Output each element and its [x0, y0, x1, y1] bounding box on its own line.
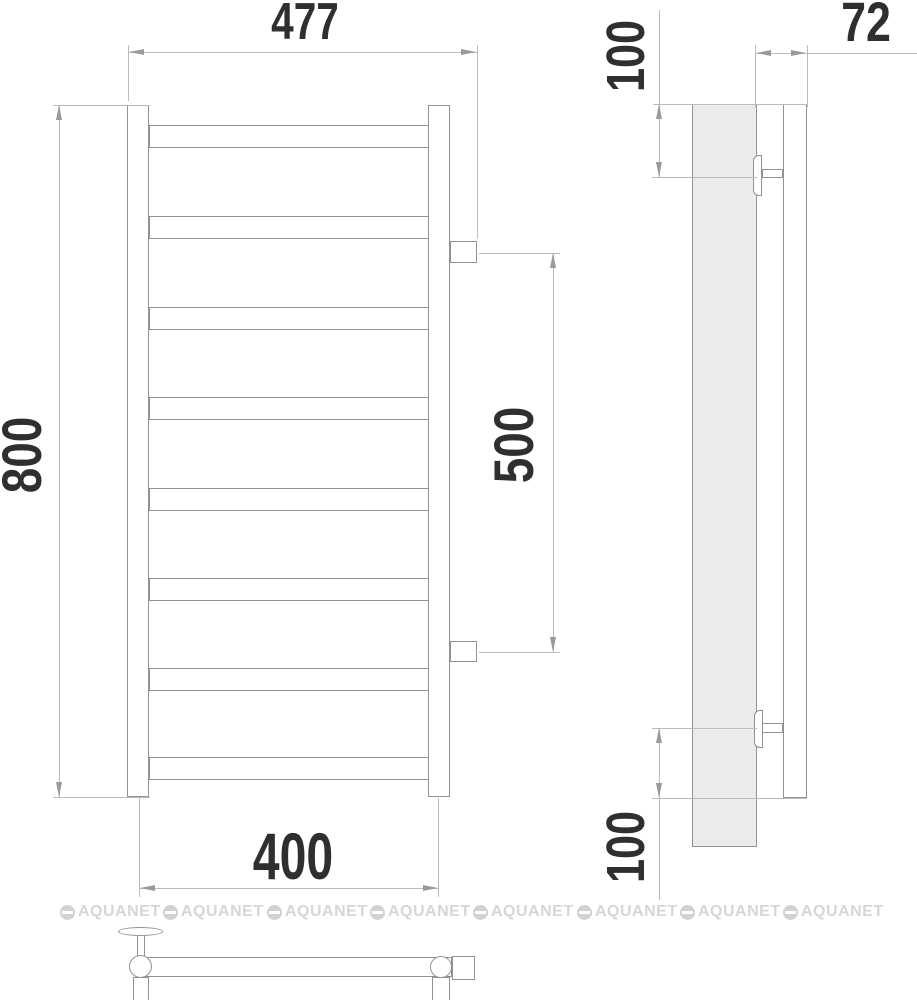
- dim-arrow-up: [550, 253, 556, 268]
- aquanet-logo-circle-icon: [60, 905, 75, 920]
- watermark: AQUANET: [473, 904, 574, 920]
- rung: [149, 216, 429, 239]
- plan-valve-flange: [118, 927, 163, 936]
- top-bracket-flange: [753, 155, 762, 196]
- wall-mount-rail: [783, 104, 807, 798]
- rung: [149, 488, 429, 511]
- dim-arrow-down: [56, 782, 62, 797]
- dim-value-500: 500: [486, 407, 542, 484]
- dim-arrow-up: [56, 105, 62, 120]
- plan-tube-end-cap: [452, 956, 475, 980]
- watermark-label: AQUANET: [801, 904, 884, 920]
- rung: [149, 668, 429, 691]
- rung: [149, 307, 429, 330]
- plan-top-rung-tube: [140, 957, 452, 977]
- aquanet-logo-circle-icon: [680, 905, 695, 920]
- side-panel-profile: [692, 104, 757, 847]
- dim-arrow-down: [550, 637, 556, 652]
- aquanet-logo-circle-icon: [783, 905, 798, 920]
- watermark-label: AQUANET: [595, 904, 678, 920]
- dim-ext-line: [652, 177, 757, 178]
- watermark: AQUANET: [680, 904, 781, 920]
- dim-line: [59, 105, 60, 797]
- rung: [149, 397, 429, 420]
- aquanet-logo-circle-icon: [473, 905, 488, 920]
- dim-value-400: 400: [253, 823, 333, 889]
- lower-connection-fitting: [450, 641, 477, 662]
- watermark: AQUANET: [370, 904, 471, 920]
- dim-value-477: 477: [271, 0, 339, 48]
- dim-value-100-bottom: 100: [599, 811, 653, 883]
- dim-arrow-left: [140, 885, 155, 891]
- plan-right-bracket-pin: [432, 977, 450, 1000]
- aquanet-logo-circle-icon: [577, 905, 592, 920]
- watermark-label: AQUANET: [388, 904, 471, 920]
- dim-ext-line: [53, 797, 150, 798]
- dim-ext-line: [438, 798, 439, 897]
- dim-value-100-top: 100: [599, 20, 653, 92]
- bottom-bracket-flange: [754, 710, 763, 748]
- plan-right-post-section: [430, 956, 452, 978]
- watermark-label: AQUANET: [181, 904, 264, 920]
- dim-ext-line: [479, 652, 560, 653]
- aquanet-logo-circle-icon: [370, 905, 385, 920]
- bottom-bracket-pin: [762, 723, 783, 733]
- plan-left-post-section: [129, 955, 152, 978]
- dim-arrow-down: [656, 162, 662, 177]
- watermark: AQUANET: [163, 904, 264, 920]
- watermark-label: AQUANET: [491, 904, 574, 920]
- dim-ext-line: [653, 104, 807, 105]
- dim-ext-line: [652, 728, 757, 729]
- rung: [149, 757, 429, 780]
- dim-arrow-left: [129, 49, 144, 55]
- right-post: [428, 105, 450, 797]
- dim-ext-line: [479, 253, 560, 254]
- plan-left-bracket-pin: [133, 977, 149, 1000]
- watermark: AQUANET: [267, 904, 368, 920]
- dim-arrow-right: [423, 885, 438, 891]
- towel-rail-technical-drawing: 477 800 500 100 100: [0, 0, 917, 1000]
- dim-arrow-down: [656, 783, 662, 798]
- aquanet-logo-circle-icon: [163, 905, 178, 920]
- dim-line: [755, 53, 917, 54]
- dim-value-800: 800: [0, 417, 50, 494]
- watermark: AQUANET: [577, 904, 678, 920]
- dim-arrow-right: [461, 49, 476, 55]
- watermark-label: AQUANET: [78, 904, 161, 920]
- dim-arrow-up: [656, 104, 662, 119]
- dim-line: [128, 52, 477, 53]
- aquanet-logo-circle-icon: [267, 905, 282, 920]
- dim-value-72: 72: [841, 0, 891, 50]
- dim-line: [553, 253, 554, 652]
- dim-line: [659, 728, 660, 900]
- watermark-label: AQUANET: [698, 904, 781, 920]
- dim-arrow-left: [756, 50, 771, 56]
- dim-ext-line: [807, 45, 808, 107]
- watermark-label: AQUANET: [285, 904, 368, 920]
- dim-arrow-up: [656, 728, 662, 743]
- rung: [149, 125, 429, 148]
- watermark: AQUANET: [60, 904, 161, 920]
- dim-ext-line: [477, 45, 478, 239]
- watermark: AQUANET: [783, 904, 884, 920]
- dim-ext-line: [652, 798, 807, 799]
- dim-line: [659, 10, 660, 177]
- rung: [149, 578, 429, 601]
- top-bracket-pin: [762, 169, 783, 178]
- dim-ext-line: [139, 798, 140, 897]
- upper-connection-fitting: [450, 241, 477, 263]
- dim-ext-line: [53, 105, 150, 106]
- dim-arrow-right: [791, 50, 806, 56]
- left-post: [127, 105, 149, 797]
